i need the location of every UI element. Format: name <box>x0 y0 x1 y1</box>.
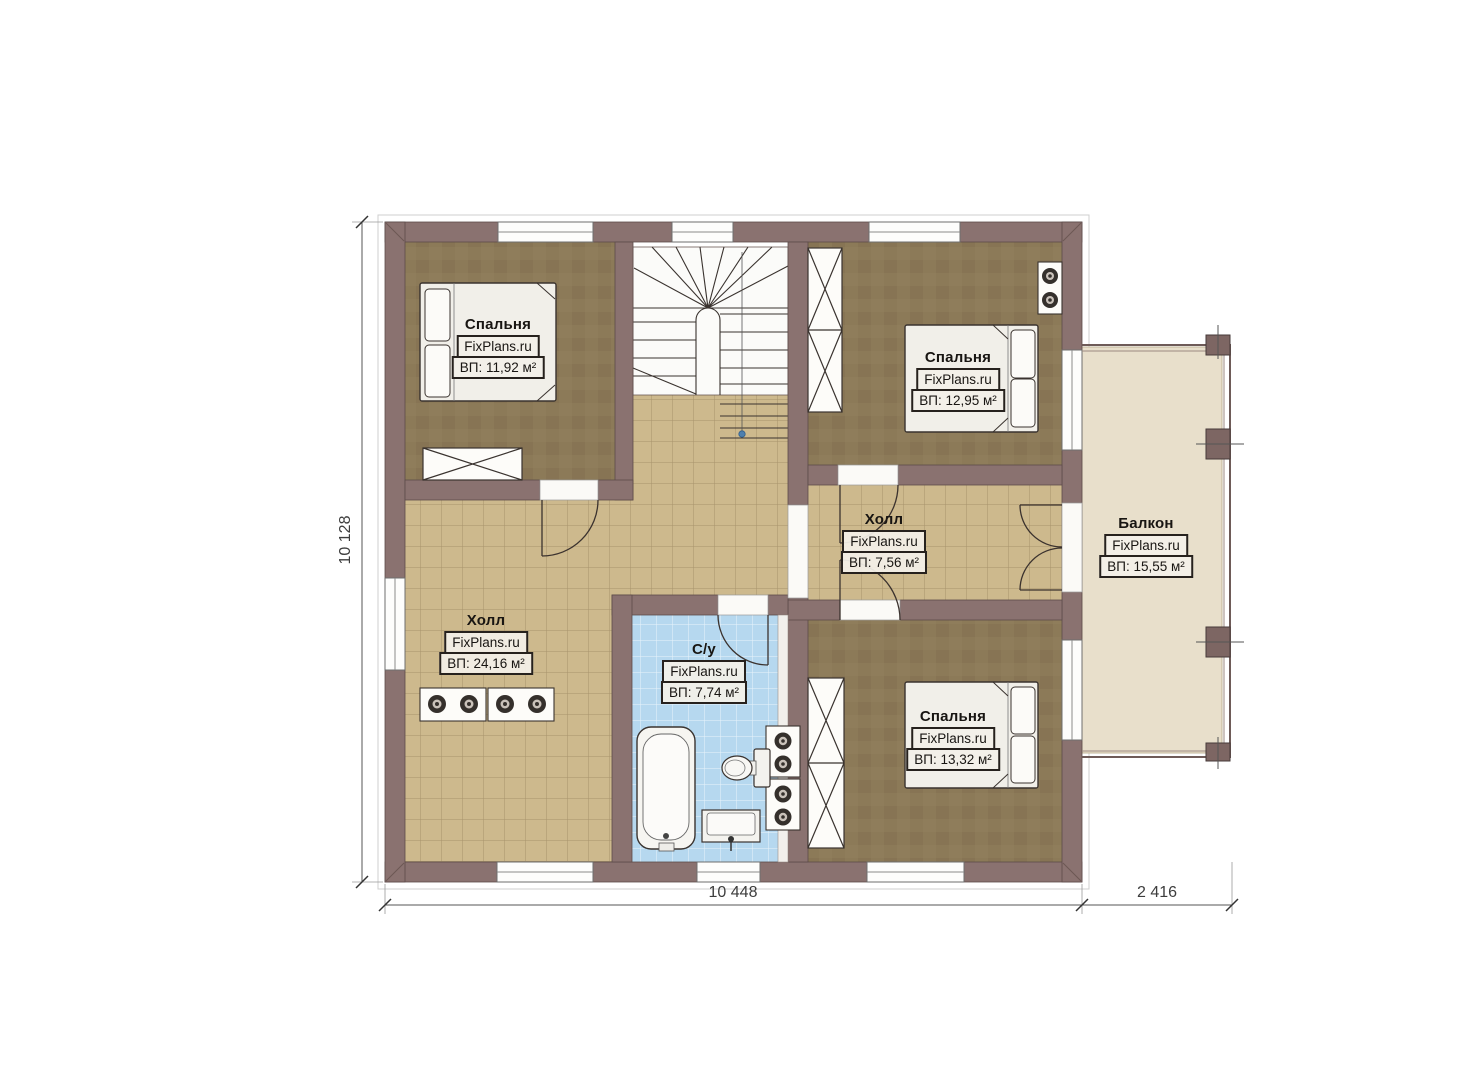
room-name: Спальня <box>925 349 991 366</box>
dimension-left: 10 128 <box>337 516 355 565</box>
area-box: ВП: 7,56 м² <box>841 551 927 574</box>
area-box: ВП: 7,74 м² <box>661 681 747 704</box>
watermark-box: FixPlans.ru <box>662 660 746 683</box>
room-name: Балкон <box>1118 515 1173 532</box>
watermark-box: FixPlans.ru <box>444 631 528 654</box>
room-label-bedroom-1: Спальня FixPlans.ru ВП: 11,92 м² <box>452 316 545 379</box>
wardrobe-bedroom-3 <box>808 678 844 848</box>
room-label-hall-small: Холл FixPlans.ru ВП: 7,56 м² <box>841 511 927 574</box>
room-label-bathroom: С/у FixPlans.ru ВП: 7,74 м² <box>661 641 747 704</box>
room-name: Холл <box>865 511 903 528</box>
room-label-bedroom-2: Спальня FixPlans.ru ВП: 12,95 м² <box>911 349 1005 412</box>
door-frame-balcony <box>1062 503 1082 592</box>
watermark-box: FixPlans.ru <box>1104 534 1188 557</box>
opening-hall <box>788 505 808 598</box>
bathtub <box>637 727 695 851</box>
area-box: ВП: 15,55 м² <box>1099 555 1193 578</box>
area-box: ВП: 11,92 м² <box>452 356 545 379</box>
area-box: ВП: 24,16 м² <box>439 652 533 675</box>
room-label-hall-main: Холл FixPlans.ru ВП: 24,16 м² <box>439 612 533 675</box>
door-frame-bedroom-3 <box>840 600 900 620</box>
area-box: ВП: 12,95 м² <box>911 389 1005 412</box>
room-name: Спальня <box>920 708 986 725</box>
wall-left <box>385 222 405 882</box>
room-label-balcony: Балкон FixPlans.ru ВП: 15,55 м² <box>1099 515 1193 578</box>
watermark-box: FixPlans.ru <box>456 335 540 358</box>
floor-plan-canvas: Спальня FixPlans.ru ВП: 11,92 м² Спальня… <box>0 0 1473 1080</box>
watermark-box: FixPlans.ru <box>842 530 926 553</box>
door-frame-bedroom-2 <box>838 465 898 485</box>
room-name: Спальня <box>465 316 531 333</box>
room-label-bedroom-3: Спальня FixPlans.ru ВП: 13,32 м² <box>906 708 1000 771</box>
vent-bedroom-2 <box>1038 262 1062 314</box>
floor-plan-drawing <box>0 0 1473 1080</box>
stair-direction-dot <box>739 431 745 437</box>
wardrobe-bedroom-1 <box>423 448 522 480</box>
area-box: ВП: 13,32 м² <box>906 748 1000 771</box>
room-name: С/у <box>692 641 716 658</box>
room-name: Холл <box>467 612 505 629</box>
wardrobe-bedroom-2 <box>808 248 842 412</box>
door-frame-bedroom-1 <box>540 480 598 500</box>
watermark-box: FixPlans.ru <box>916 368 1000 391</box>
dimension-bottom-main: 10 448 <box>709 884 758 902</box>
watermark-box: FixPlans.ru <box>911 727 995 750</box>
door-frame-bathroom <box>718 595 768 615</box>
dimension-bottom-balcony: 2 416 <box>1137 884 1177 902</box>
